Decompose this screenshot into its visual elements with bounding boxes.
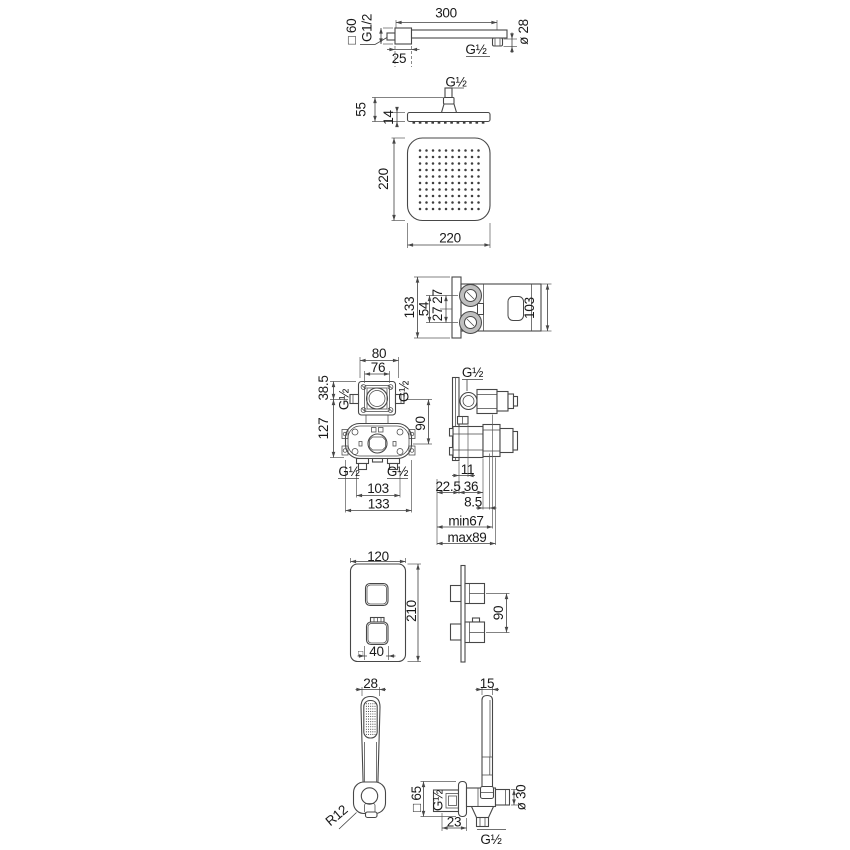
dim-valveside-max89: max89 [447, 530, 486, 545]
dim-plate-handle-size: 40 [369, 644, 383, 659]
trim-plate-front-view: 120 210 □ 40 [351, 549, 422, 662]
dim-valveside-min67: min67 [448, 514, 483, 529]
dim-mixer-height: 133 [402, 297, 417, 319]
dim-plate-height: 210 [404, 600, 419, 622]
dim-arm-length: 300 [435, 6, 457, 21]
shower-system-dimension-drawing: 300 □ 60 G1/2 25 G½ ø 28 G½ 55 14 220 [0, 0, 850, 850]
overhead-shower-front-view: 220 220 [376, 138, 490, 248]
dim-plateside-handle-spacing: 90 [491, 606, 506, 620]
dim-headside-thickness: 14 [381, 110, 396, 125]
hand-shower-side-view: 15 □ 65 G½ ø 30 23 G½ [409, 676, 529, 847]
dim-mixer-body-height: 103 [522, 297, 537, 319]
dim-headside-height: 55 [354, 102, 369, 116]
dim-valve-box-width: 80 [372, 346, 386, 361]
dim-valve-top-offset: 38.5 [316, 375, 331, 400]
dim-elbow-depth: 23 [447, 815, 461, 830]
shower-arm-side-view: 300 □ 60 G1/2 25 G½ ø 28 [344, 6, 531, 68]
dim-valveside-36: 36 [464, 479, 478, 494]
technical-drawing-sheet: 300 □ 60 G1/2 25 G½ ø 28 G½ 55 14 220 [0, 0, 850, 850]
mixer-body-side-view: 133 54 27 27 103 [402, 277, 552, 338]
dim-head-height: 220 [376, 168, 391, 190]
dim-plate-width: 120 [367, 549, 389, 564]
dim-valve-port-drop: 90 [413, 416, 428, 430]
dim-headside-thread: G½ [445, 75, 466, 90]
dim-valve-bottom-right-thread: G½ [387, 464, 408, 479]
dim-valve-bottom-left-thread: G½ [338, 464, 359, 479]
dim-arm-wall-thread: G1/2 [360, 14, 375, 42]
dim-head-width: 220 [439, 231, 461, 246]
dim-elbow-outlet-diameter: ø 30 [514, 785, 529, 811]
dim-arm-flange-depth: 25 [392, 51, 406, 66]
dim-elbow-hose-thread: G½ [480, 832, 501, 847]
dim-arm-flange-square: □ 60 [344, 19, 359, 45]
concealed-valve-side-view: G½ 11 22.5 36 8.5 min67 max89 [435, 365, 517, 545]
hand-shower-front-view: 28 R12 [323, 676, 386, 829]
dim-valve-right-thread: G½ [397, 381, 412, 402]
dim-valve-port-spacing: 103 [367, 481, 389, 496]
dim-valve-height: 127 [316, 418, 331, 440]
dim-mixer-offset-lower: 27 [430, 307, 445, 321]
dim-valveside-thread: G½ [462, 365, 483, 380]
dim-handshower-radius: R12 [323, 802, 351, 829]
dim-elbow-flange-thread: G½ [431, 790, 446, 811]
dim-valve-left-thread: G½ [337, 389, 352, 410]
dim-handshowerside-width: 15 [480, 676, 494, 691]
dim-arm-outlet-diameter: ø 28 [516, 19, 531, 45]
dim-valve-total-width: 133 [368, 497, 390, 512]
trim-plate-side-view: 90 [451, 566, 510, 663]
dim-valveside-22-5: 22.5 [435, 479, 460, 494]
dim-arm-outlet-thread: G½ [465, 42, 486, 57]
dim-elbow-flange-square: □ 65 [409, 786, 424, 812]
dim-valve-box-inner-width: 76 [371, 360, 385, 375]
concealed-valve-front-view: 80 76 38.5 G½ G½ 127 90 G½ G½ 103 133 [316, 346, 432, 513]
dim-mixer-offset-upper: 27 [430, 289, 445, 303]
dim-handshower-width: 28 [363, 676, 377, 691]
